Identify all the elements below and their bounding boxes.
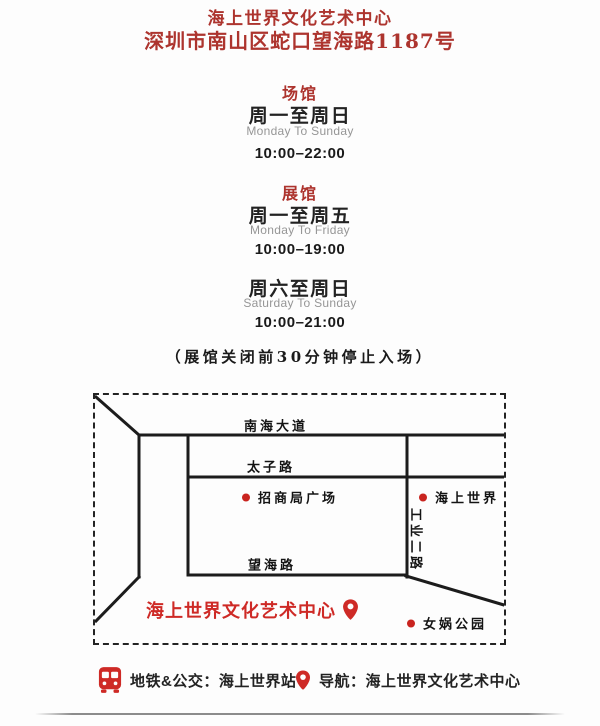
page-address: 深圳市南山区蛇口望海路1187号 bbox=[0, 25, 600, 54]
location-map: 南海大道 太子路 望海路 工业二路 招商局广场 海上世界 女娲公园 海上世界文化… bbox=[93, 393, 506, 645]
road-diagonal-bottom-left bbox=[96, 577, 139, 621]
poi-center-label: 海上世界文化艺术中心 bbox=[146, 597, 336, 623]
venue-time: 10:00–22:00 bbox=[0, 145, 600, 162]
road-label-taizi: 太子路 bbox=[247, 457, 295, 476]
bottom-divider bbox=[35, 713, 565, 715]
flyer-page: 海上世界文化艺术中心 深圳市南山区蛇口望海路1187号 场馆 周一至周日 Mon… bbox=[0, 0, 600, 726]
road-diagonal-top-left bbox=[96, 397, 139, 435]
poi-nuwa: 女娲公园 bbox=[407, 614, 487, 633]
legend-transit-text: 地铁&公交：海上世界站 bbox=[130, 670, 296, 691]
legend-transit: 地铁&公交：海上世界站 bbox=[98, 666, 296, 694]
exhibition-weekend-time: 10:00–21:00 bbox=[0, 314, 600, 331]
location-pin-icon bbox=[295, 668, 311, 693]
exhibition-weekday-time: 10:00–19:00 bbox=[0, 241, 600, 258]
road-label-nanhai: 南海大道 bbox=[244, 416, 308, 435]
legend-navigation: 导航：海上世界文化艺术中心 bbox=[295, 666, 521, 694]
poi-dot bbox=[407, 619, 415, 627]
poi-label: 招商局广场 bbox=[258, 488, 338, 507]
location-pin-icon bbox=[342, 598, 359, 622]
poi-label: 海上世界 bbox=[435, 488, 499, 507]
poi-center-highlight: 海上世界文化艺术中心 bbox=[146, 597, 359, 623]
poi-seaworld: 海上世界 bbox=[419, 488, 499, 507]
bus-icon bbox=[98, 666, 122, 694]
poi-label: 女娲公园 bbox=[423, 614, 487, 633]
exhibition-weekday-days-en: Monday To Friday bbox=[0, 223, 600, 237]
road-diagonal-bottom-right bbox=[406, 576, 504, 605]
venue-days-en: Monday To Sunday bbox=[0, 124, 600, 138]
poi-dot bbox=[419, 493, 427, 501]
exhibition-weekend-days-en: Saturday To Sunday bbox=[0, 296, 600, 310]
road-label-gongye: 工业二路 bbox=[408, 508, 427, 572]
poi-zhaoshang: 招商局广场 bbox=[242, 488, 338, 507]
road-label-wanghai: 望海路 bbox=[248, 555, 296, 574]
legend-navigation-text: 导航：海上世界文化艺术中心 bbox=[319, 670, 521, 691]
closing-note: （展馆关闭前30分钟停止入场） bbox=[0, 346, 600, 367]
poi-dot bbox=[242, 493, 250, 501]
